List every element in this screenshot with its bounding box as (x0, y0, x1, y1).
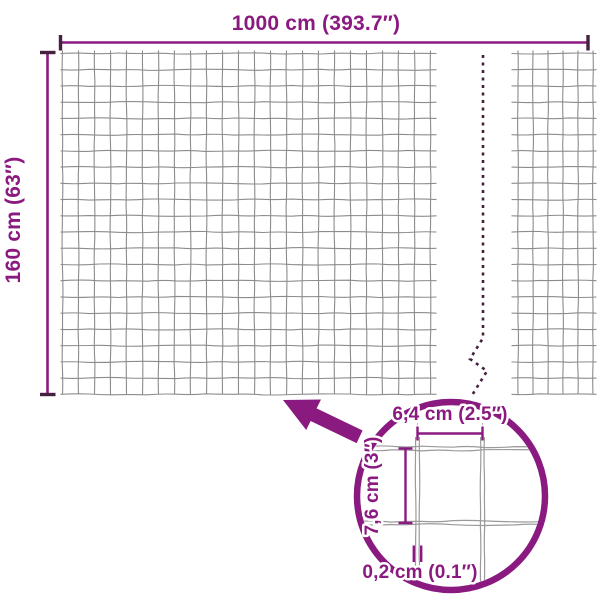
wire-line (512, 86, 597, 87)
wire-line (222, 51, 223, 395)
wire-line (480, 437, 481, 584)
cell-width-label: 6,4 cm (2.5″) (392, 404, 507, 425)
wire-line (512, 264, 597, 265)
wire-line (190, 51, 191, 395)
height-dimension-label: 160 cm (63″) (2, 157, 25, 284)
wire-line (512, 183, 597, 184)
wire-line (61, 102, 437, 103)
wire-line (414, 51, 415, 395)
wire-line (61, 329, 437, 330)
wire-line (61, 150, 437, 151)
wire-line (512, 151, 597, 152)
wire-line (533, 51, 534, 395)
wire-mesh-dimension-diagram: 1000 cm (393.7″) 160 cm (63″) 6,4 cm (2.… (0, 0, 600, 600)
wire-line (318, 51, 319, 395)
wire-line (593, 51, 594, 395)
wire-line (61, 118, 437, 119)
wire-line (61, 345, 437, 346)
wire-line (518, 51, 519, 395)
wire-line (512, 378, 597, 379)
wire-line (206, 51, 207, 395)
wire-line (512, 69, 597, 70)
mesh-panel-main (61, 51, 437, 395)
wire-line (512, 199, 597, 200)
wire-line (61, 53, 437, 54)
wire-line (286, 51, 287, 395)
wire-line (350, 51, 351, 395)
wire-line (61, 377, 437, 378)
wire-line (61, 296, 437, 297)
wire-line (512, 362, 597, 363)
break-line (470, 55, 487, 397)
wire-line (174, 51, 175, 395)
detail-callout: 6,4 cm (2.5″) 7,6 cm (3″) 0,2 cm (0.1″) (357, 402, 546, 590)
wire-line (512, 53, 597, 54)
wire-line (62, 51, 63, 395)
wire-line (512, 231, 597, 232)
wire-line (61, 231, 437, 232)
wire-line (512, 329, 597, 330)
wire-line (334, 51, 335, 395)
wire-line (512, 394, 597, 395)
height-dimension: 160 cm (63″) (2, 53, 56, 395)
wire-line (61, 199, 437, 200)
wire-line (61, 313, 437, 314)
wire-line (512, 313, 597, 314)
wire-line (484, 437, 485, 584)
wire-line (238, 51, 239, 395)
width-dimension: 1000 cm (393.7″) (61, 12, 589, 51)
wire-line (61, 69, 437, 70)
wire-line (61, 394, 437, 395)
wire-line (512, 134, 597, 135)
wire-line (578, 51, 579, 395)
wire-line (61, 280, 437, 281)
wire-line (512, 167, 597, 168)
mesh-panel-continuation (512, 51, 597, 395)
wire-line (61, 215, 437, 216)
wire-line (126, 51, 127, 395)
wire-line (512, 345, 597, 346)
wire-line (61, 167, 437, 168)
cell-height-label: 7,6 cm (3″) (362, 437, 383, 536)
wire-line (110, 51, 111, 395)
product-dimension-image: 1000 cm (393.7″) 160 cm (63″) 6,4 cm (2.… (0, 0, 600, 600)
zoom-arrow-icon (283, 400, 363, 444)
wire-line (430, 51, 431, 395)
wire-thickness-label: 0,2 cm (0.1″) (362, 562, 477, 583)
wire-line (512, 280, 597, 281)
wire-line (94, 51, 95, 395)
width-dimension-label: 1000 cm (393.7″) (232, 12, 401, 35)
wire-line (61, 361, 437, 362)
wire-line (78, 51, 79, 395)
wire-line (512, 102, 597, 103)
wire-line (61, 134, 437, 135)
wire-line (302, 51, 303, 395)
wire-line (61, 264, 437, 265)
wire-line (512, 248, 597, 249)
wire-line (61, 85, 437, 86)
wire-line (61, 248, 437, 249)
wire-line (512, 297, 597, 298)
wire-line (366, 51, 367, 395)
wire-line (512, 215, 597, 216)
wire-line (61, 183, 437, 184)
wire-line (512, 118, 597, 119)
